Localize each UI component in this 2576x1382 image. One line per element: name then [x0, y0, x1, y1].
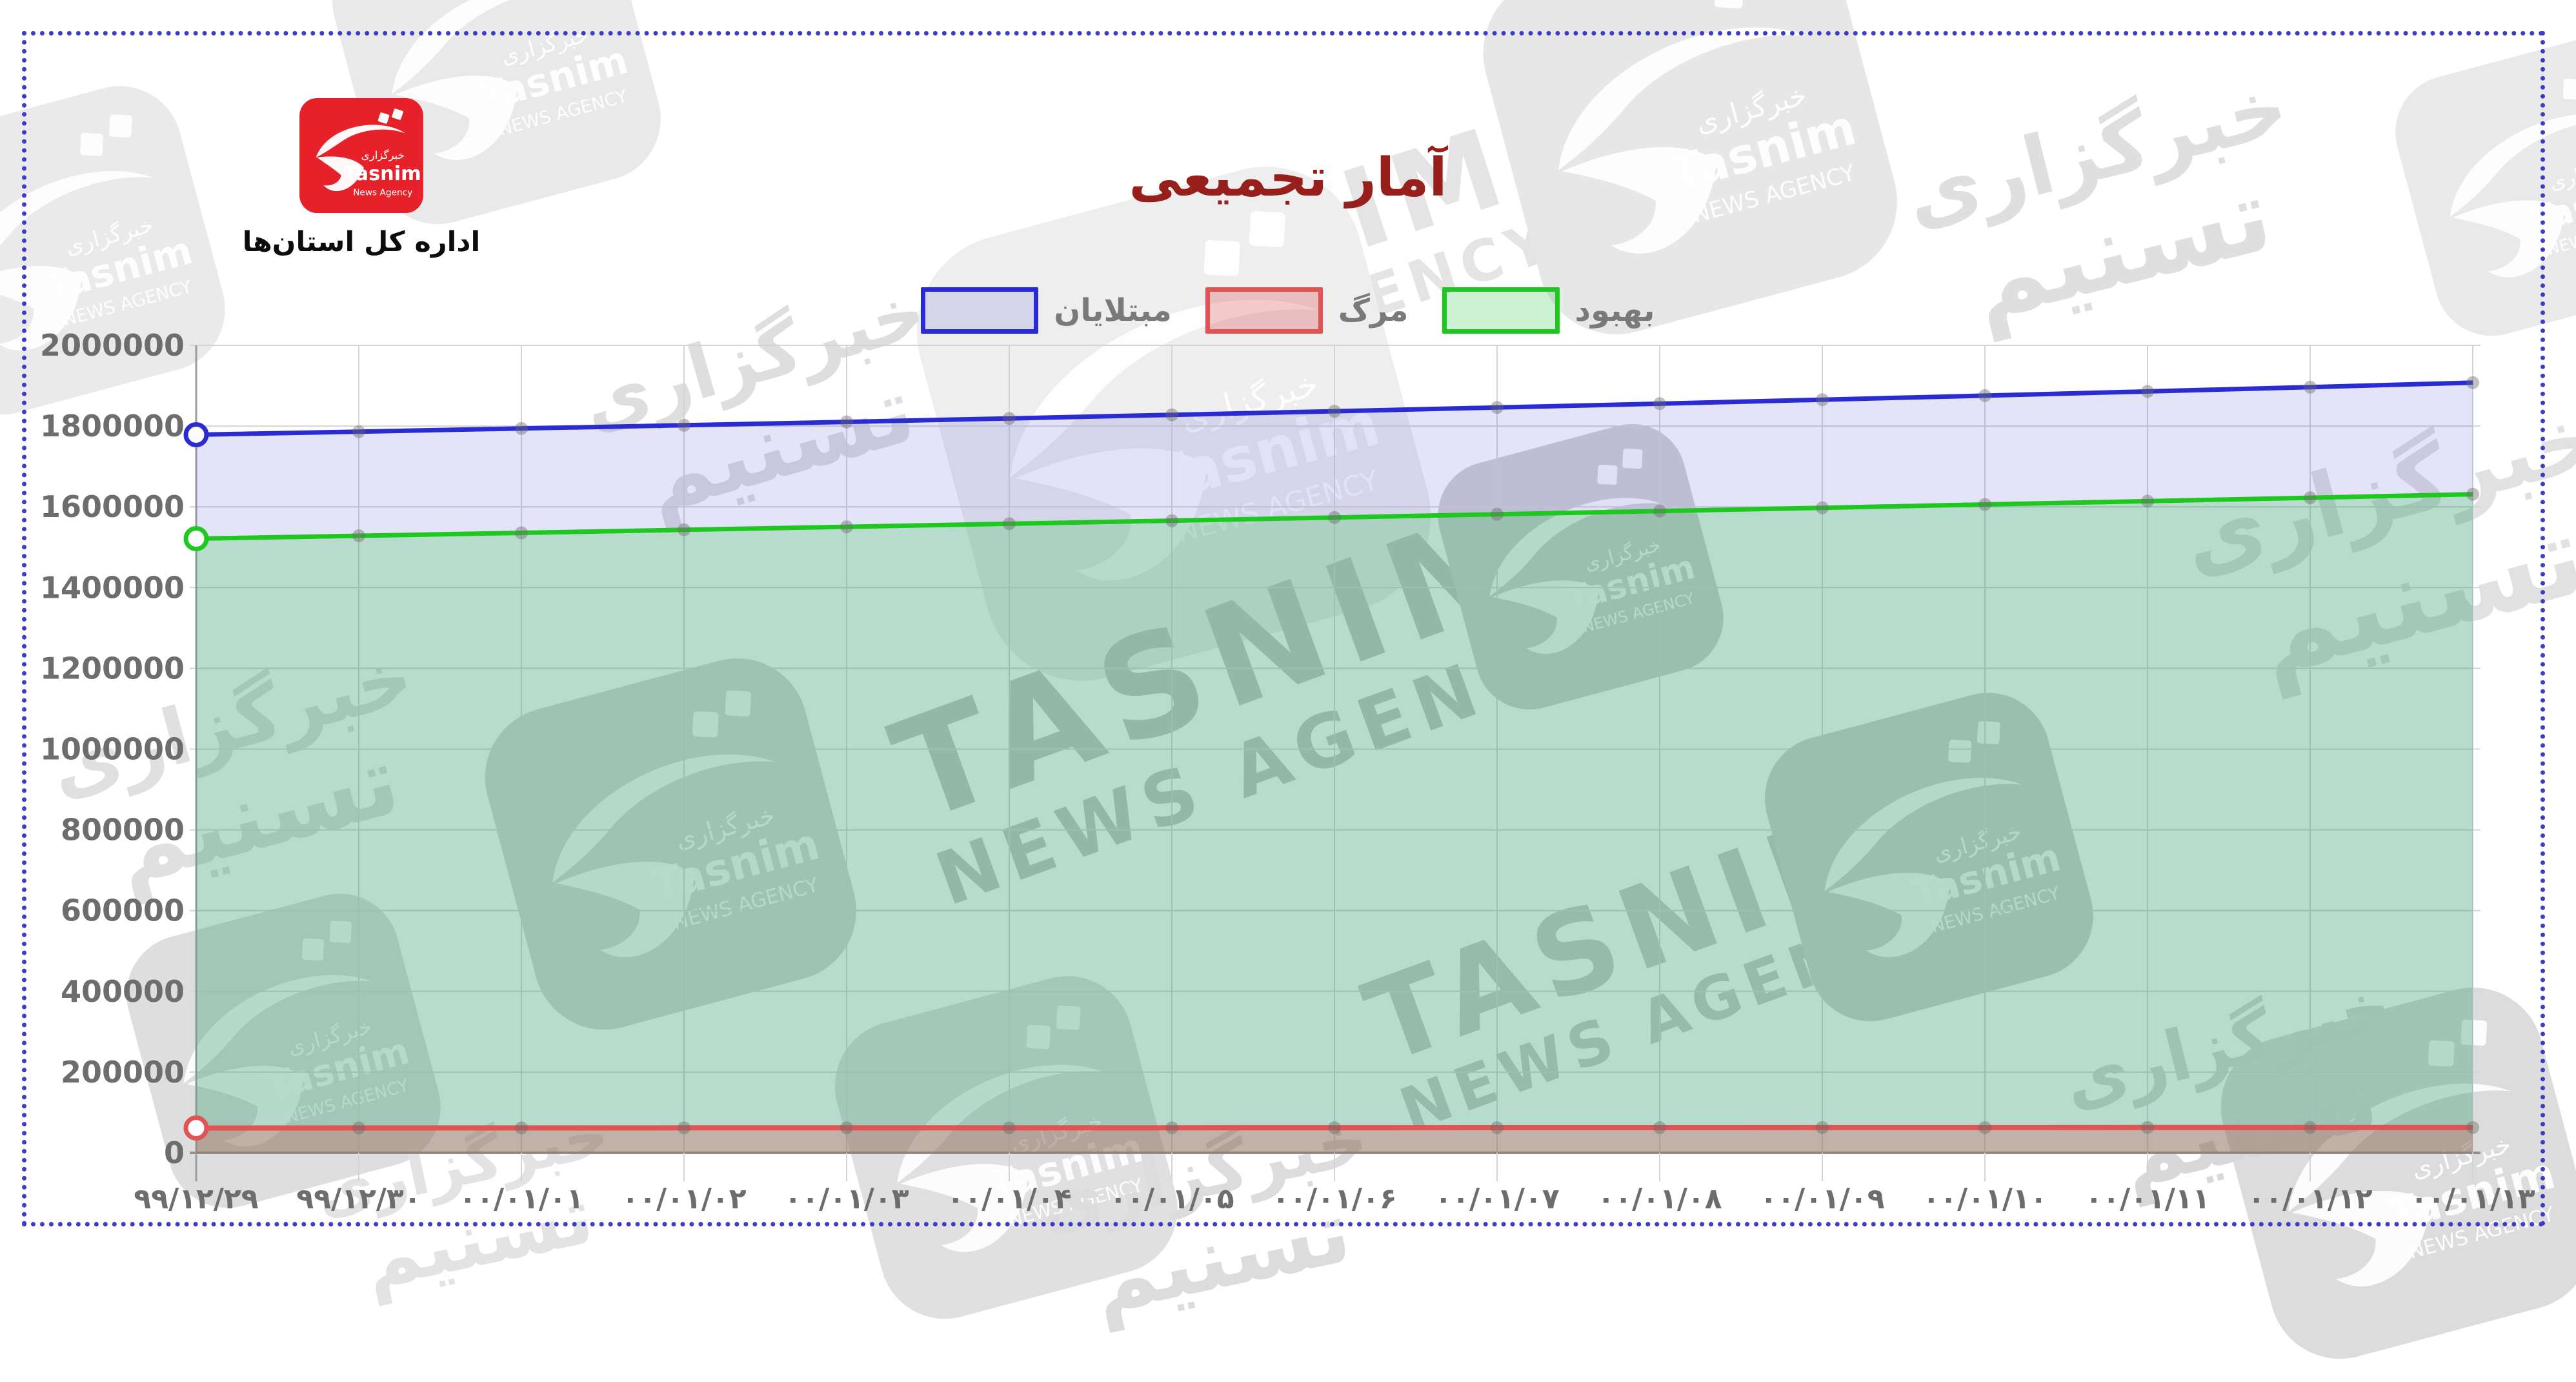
- y-tick-label: 1000000: [40, 732, 185, 767]
- data-point-deaths: [2466, 1121, 2479, 1134]
- y-tick-label: 200000: [61, 1055, 185, 1090]
- data-point-cases: [515, 422, 528, 435]
- first-point-marker-recovered: [186, 529, 206, 549]
- legend-label-recovered: بهبود: [1575, 292, 1655, 329]
- data-point-cases: [2141, 385, 2154, 398]
- data-point-cases: [2466, 376, 2479, 389]
- legend-swatch-recovered: [1442, 287, 1560, 334]
- data-point-deaths: [1003, 1121, 1016, 1134]
- x-tick-label: ۰۰/۰۱/۰۷: [1434, 1183, 1559, 1215]
- data-point-recovered: [515, 527, 528, 540]
- data-point-deaths: [840, 1121, 853, 1134]
- data-point-deaths: [1328, 1121, 1341, 1134]
- legend-swatch-cases: [921, 287, 1038, 334]
- data-point-deaths: [1653, 1121, 1666, 1134]
- data-point-cases: [1328, 405, 1341, 418]
- x-tick-labels: ۹۹/۱۲/۲۹۹۹/۱۲/۳۰۰۰/۰۱/۰۱۰۰/۰۱/۰۲۰۰/۰۱/۰۳…: [134, 1183, 2535, 1215]
- legend-label-deaths: مرگ: [1338, 292, 1409, 329]
- page: { "frame": { "color": "#3c3cc9" }, "bran…: [0, 0, 2576, 1254]
- x-tick-label: ۰۰/۰۱/۱۱: [2085, 1183, 2209, 1215]
- x-tick-label: ۰۰/۰۱/۱۲: [2248, 1183, 2372, 1215]
- data-point-recovered: [840, 520, 853, 533]
- y-tick-label: 1200000: [40, 651, 185, 686]
- data-point-recovered: [1165, 514, 1178, 527]
- data-point-recovered: [1328, 511, 1341, 524]
- data-point-recovered: [1978, 498, 1991, 511]
- y-tick-label: 1800000: [40, 409, 185, 443]
- data-point-cases: [1491, 401, 1504, 414]
- chart-title: آمار تجمیعی: [0, 147, 2576, 208]
- data-point-deaths: [515, 1121, 528, 1134]
- data-point-recovered: [2304, 491, 2317, 504]
- data-point-recovered: [678, 523, 690, 536]
- x-tick-label: ۰۰/۰۱/۰۲: [621, 1183, 746, 1215]
- data-point-deaths: [352, 1121, 365, 1134]
- data-point-cases: [352, 425, 365, 438]
- y-tick-label: 1400000: [40, 570, 185, 605]
- x-tick-label: ۰۰/۰۱/۰۶: [1272, 1183, 1396, 1215]
- data-point-recovered: [1816, 502, 1829, 514]
- series-area-recovered: [196, 494, 2473, 1153]
- data-point-cases: [1165, 409, 1178, 422]
- data-point-recovered: [1003, 517, 1016, 530]
- y-tick-label: 0: [164, 1135, 185, 1170]
- data-point-cases: [1816, 393, 1829, 406]
- chart-legend: مبتلایانمرگبهبود: [0, 283, 2576, 338]
- x-tick-label: ۹۹/۱۲/۳۰: [296, 1183, 421, 1215]
- y-tick-label: 800000: [61, 813, 185, 848]
- y-tick-label: 400000: [61, 974, 185, 1009]
- data-point-cases: [1978, 389, 1991, 402]
- x-tick-label: ۹۹/۱۲/۲۹: [134, 1183, 258, 1215]
- x-tick-label: ۰۰/۰۱/۱۳: [2410, 1183, 2535, 1215]
- data-point-deaths: [2141, 1121, 2154, 1134]
- data-point-deaths: [1978, 1121, 1991, 1134]
- x-tick-label: ۰۰/۰۱/۱۰: [1922, 1183, 2047, 1215]
- legend-item-deaths[interactable]: مرگ: [1205, 287, 1409, 334]
- data-point-deaths: [678, 1121, 690, 1134]
- data-point-recovered: [1653, 505, 1666, 518]
- y-tick-label: 1600000: [40, 489, 185, 524]
- data-point-deaths: [1491, 1121, 1504, 1134]
- x-tick-label: ۰۰/۰۱/۰۱: [459, 1183, 583, 1215]
- legend-item-cases[interactable]: مبتلایان: [921, 287, 1171, 334]
- y-tick-label: 600000: [61, 893, 185, 928]
- legend-label-cases: مبتلایان: [1054, 292, 1171, 329]
- x-tick-label: ۰۰/۰۱/۰۴: [947, 1183, 1071, 1215]
- data-point-cases: [2304, 381, 2317, 394]
- data-point-recovered: [2466, 488, 2479, 501]
- data-point-cases: [1653, 397, 1666, 410]
- x-tick-label: ۰۰/۰۱/۰۹: [1760, 1183, 1884, 1215]
- department-label: اداره کل استان‌ها: [219, 226, 503, 258]
- data-point-deaths: [1816, 1121, 1829, 1134]
- x-tick-label: ۰۰/۰۱/۰۸: [1597, 1183, 1722, 1215]
- first-point-marker-deaths: [186, 1118, 206, 1139]
- data-point-recovered: [352, 529, 365, 542]
- data-point-cases: [1003, 412, 1016, 425]
- data-point-deaths: [1165, 1121, 1178, 1134]
- legend-swatch-deaths: [1205, 287, 1323, 334]
- legend-item-recovered[interactable]: بهبود: [1442, 287, 1655, 334]
- data-point-cases: [678, 419, 690, 432]
- data-point-recovered: [1491, 508, 1504, 521]
- data-point-recovered: [2141, 494, 2154, 507]
- first-point-marker-cases: [186, 425, 206, 445]
- x-tick-label: ۰۰/۰۱/۰۳: [784, 1183, 909, 1215]
- x-tick-label: ۰۰/۰۱/۰۵: [1109, 1183, 1234, 1215]
- data-point-cases: [840, 416, 853, 429]
- data-point-deaths: [2304, 1121, 2317, 1134]
